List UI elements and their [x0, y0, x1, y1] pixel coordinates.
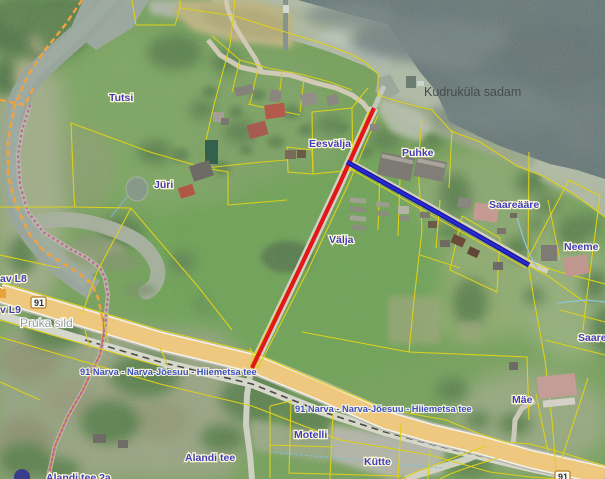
svg-text:91: 91	[558, 472, 568, 479]
svg-text:Alandi tee 2a: Alandi tee 2a	[46, 472, 111, 479]
svg-text:91 Narva - Narva-Jõesuu - Hiie: 91 Narva - Narva-Jõesuu - Hiiemetsa tee	[80, 367, 257, 377]
svg-text:Välja: Välja	[329, 234, 354, 246]
svg-text:Motelli: Motelli	[294, 429, 327, 441]
svg-text:Pruka sild: Pruka sild	[20, 316, 73, 330]
svg-text:91 Narva - Narva-Jõesuu - Hiie: 91 Narva - Narva-Jõesuu - Hiiemetsa tee	[295, 404, 472, 414]
svg-text:Neeme: Neeme	[564, 241, 599, 253]
svg-text:Mäe: Mäe	[512, 394, 533, 406]
svg-text:Kütte: Kütte	[364, 456, 391, 468]
svg-text:Alandi tee: Alandi tee	[185, 452, 235, 464]
svg-text:Saareääre: Saareääre	[489, 199, 539, 211]
svg-text:Eesvälja: Eesvälja	[309, 138, 351, 150]
svg-text:Kudruküla sadam: Kudruküla sadam	[424, 85, 521, 99]
svg-text:Puhke: Puhke	[402, 147, 434, 159]
svg-text:Tutsi: Tutsi	[109, 92, 133, 104]
svg-text:91: 91	[34, 298, 44, 308]
svg-text:v L9: v L9	[0, 304, 21, 316]
svg-text:Jüri: Jüri	[154, 179, 173, 191]
svg-text:Saare: Saare	[578, 332, 605, 344]
